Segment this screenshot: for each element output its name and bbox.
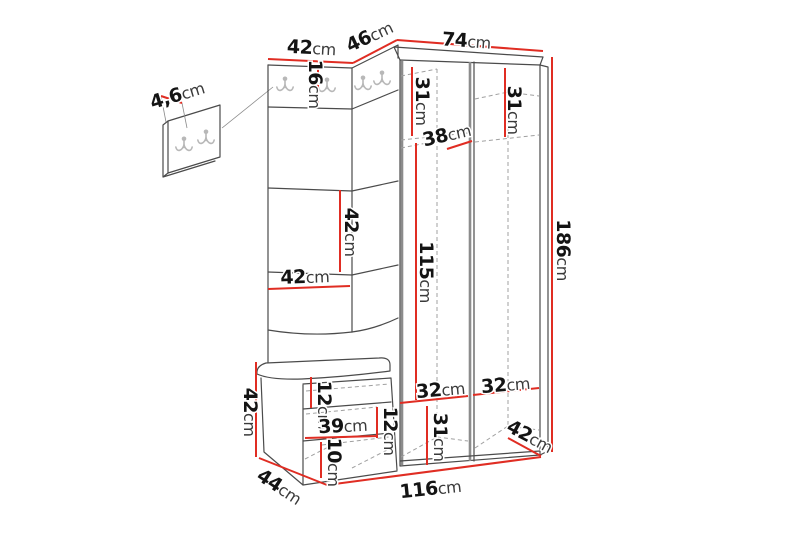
dim-label-top-compartment-left: 31cm	[411, 77, 433, 126]
dim-label-bench-height: 42cm	[239, 388, 261, 437]
pointer-line	[222, 87, 273, 128]
dim-label-bench-bottom-height: 10cm	[323, 438, 345, 487]
coat-hook-icon	[374, 71, 390, 85]
dim-label-total-width: 116cm	[399, 475, 463, 503]
coat-hook-icon	[355, 76, 371, 90]
dim-label-corner-section-width: 46cm	[343, 16, 397, 57]
dim-label-panel-width: 42cm	[280, 265, 330, 289]
dim-label-bench-interior-width: 39cm	[318, 414, 368, 439]
dim-label-hook-board-height: 16cm	[304, 60, 326, 109]
corner-section	[352, 45, 398, 332]
coat-hook-icon	[277, 77, 293, 91]
dim-label-wardrobe-width: 74cm	[441, 28, 491, 53]
diagram-svg: 4,6cm 42cm 46cm 74cm 16cm 31cm 31cm 38cm…	[0, 0, 800, 533]
bench-seat	[257, 358, 390, 379]
dim-label-panel-height: 42cm	[340, 208, 362, 257]
dim-label-hanging-space-height: 115cm	[415, 241, 437, 303]
dim-label-bottom-compartment-height: 31cm	[429, 413, 451, 462]
dim-label-bench-depth: 44cm	[253, 464, 306, 509]
dim-label-wall-panel-thickness: 4,6cm	[147, 77, 207, 114]
dim-label-total-height: 186cm	[552, 219, 574, 281]
dim-label-top-compartment-right: 31cm	[503, 86, 525, 135]
dim-label-left-section-width: 42cm	[286, 36, 336, 61]
dim-label-bench-shelf-gap: 12cm	[379, 407, 401, 456]
furniture-dimension-diagram: 4,6cm 42cm 46cm 74cm 16cm 31cm 31cm 38cm…	[0, 0, 800, 533]
